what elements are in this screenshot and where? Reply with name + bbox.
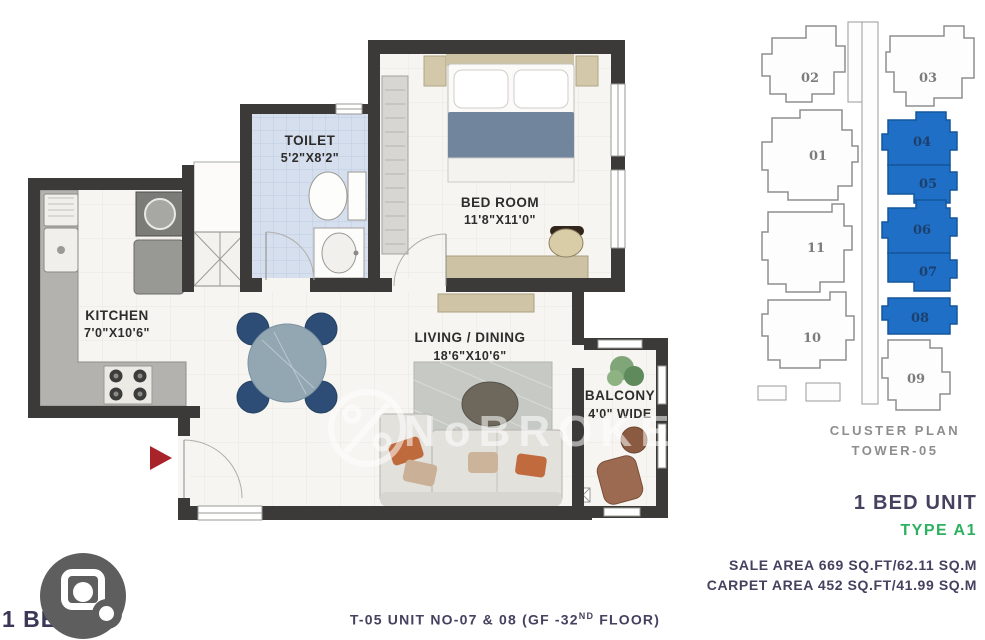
- dining-set: [237, 313, 337, 413]
- unit-10-label: 10: [803, 331, 821, 346]
- footer-superscript: ND: [579, 611, 594, 621]
- fridge: [134, 240, 184, 294]
- kitchen-label: KITCHEN: [85, 308, 149, 323]
- area-details: SALE AREA 669 SQ.FT/62.11 SQ.M CARPET AR…: [707, 555, 977, 595]
- cluster-plan-drawing: 02 03 01 04 05 11 06 07 08 10 09: [750, 18, 985, 418]
- wall-bedroom-top: [368, 40, 625, 54]
- nightstand-left: [424, 56, 446, 86]
- cluster-plan-title: CLUSTER PLAN TOWER-05: [800, 421, 985, 461]
- wall-kitchen-bottom: [28, 406, 200, 418]
- wall-bedroom-right: [611, 40, 625, 292]
- balcony-label: BALCONY: [585, 388, 655, 403]
- unit-04-label: 04: [913, 135, 931, 150]
- unit-02-shape: [762, 26, 845, 102]
- wardrobe: [382, 76, 408, 254]
- wall-kitchen-left: [28, 178, 40, 418]
- watermark-text: NoBROKER: [404, 407, 700, 456]
- bedroom-label: BED ROOM: [461, 195, 539, 210]
- stair-block: [758, 386, 786, 400]
- tv-cabinet: [438, 294, 534, 312]
- unit-08-label: 08: [911, 311, 929, 326]
- sale-area: SALE AREA 669 SQ.FT/62.11 SQ.M: [707, 555, 977, 575]
- bedroom-door-opening: [392, 278, 446, 292]
- nightstand-right: [576, 56, 598, 86]
- unit-06-label: 06: [913, 223, 931, 238]
- camera-lens-button[interactable]: [40, 553, 126, 639]
- unit-02-label: 02: [801, 71, 819, 86]
- pillow-right: [514, 70, 568, 108]
- cluster-title-line2: TOWER-05: [800, 441, 985, 461]
- unit-type-heading: 1 BED UNIT: [854, 492, 977, 515]
- wall-kitchen-top: [28, 178, 194, 190]
- foyer-wardrobe: [194, 232, 246, 286]
- washbasin: [322, 233, 356, 273]
- wall-foyer-left: [182, 165, 194, 292]
- toilet-dims: 5'2"X8'2": [281, 151, 339, 165]
- bed-foot-sheet: [448, 158, 574, 182]
- stair-block: [806, 383, 840, 401]
- bedroom-dims: 11'8"X11'0": [464, 213, 536, 227]
- footer-suffix: FLOOR): [594, 612, 660, 628]
- unit-03-shape: [886, 26, 974, 106]
- floorplan-page: TOILET 5'2"X8'2" BED ROOM 11'8"X11'0" KI…: [0, 0, 985, 640]
- wc-cistern: [348, 172, 366, 220]
- unit-03-label: 03: [919, 71, 937, 86]
- blanket: [448, 112, 574, 164]
- wc-bowl: [309, 172, 347, 220]
- wall-toilet-left: [240, 104, 252, 292]
- washbasin-tap: [354, 251, 359, 256]
- wall-living-right: [572, 292, 584, 508]
- toilet-door-opening: [262, 278, 310, 292]
- unit-05-label: 05: [919, 177, 937, 192]
- cluster-title-line1: CLUSTER PLAN: [800, 421, 985, 441]
- toilet-label: TOILET: [285, 133, 336, 148]
- sofa-back: [380, 492, 562, 506]
- duct-shaft: [194, 162, 246, 232]
- sofa-pillow-rust: [515, 453, 548, 478]
- unit-type-code: TYPE A1: [900, 522, 977, 540]
- camera-dot-icon: [99, 606, 114, 621]
- unit-07-label: 07: [919, 265, 937, 280]
- balcony-door-opening: [572, 345, 584, 368]
- footer-prefix: T-05 UNIT NO-07 & 08 (GF -32: [350, 612, 579, 628]
- unit-01-label: 01: [809, 149, 827, 164]
- desk-chair: [549, 229, 583, 257]
- unit-09-label: 09: [907, 372, 925, 387]
- wall-bedroom-left: [368, 40, 380, 292]
- washing-machine-drum: [145, 199, 175, 229]
- sink-drain: [57, 246, 65, 254]
- living-dims: 18'6"X10'6": [433, 349, 506, 363]
- carpet-area: CARPET AREA 452 SQ.FT/41.99 SQ.M: [707, 575, 977, 595]
- floorplan-drawing: TOILET 5'2"X8'2" BED ROOM 11'8"X11'0" KI…: [0, 0, 700, 560]
- pillow-left: [454, 70, 508, 108]
- entry-arrow-icon: [150, 446, 172, 470]
- kitchen-dims: 7'0"X10'6": [84, 326, 150, 340]
- camera-lens-circle-icon: [73, 582, 93, 602]
- footer-unit-info: T-05 UNIT NO-07 & 08 (GF -32ND FLOOR): [270, 611, 740, 628]
- unit-10-shape: [762, 292, 854, 368]
- living-label: LIVING / DINING: [414, 330, 525, 345]
- unit-11-label: 11: [807, 241, 825, 256]
